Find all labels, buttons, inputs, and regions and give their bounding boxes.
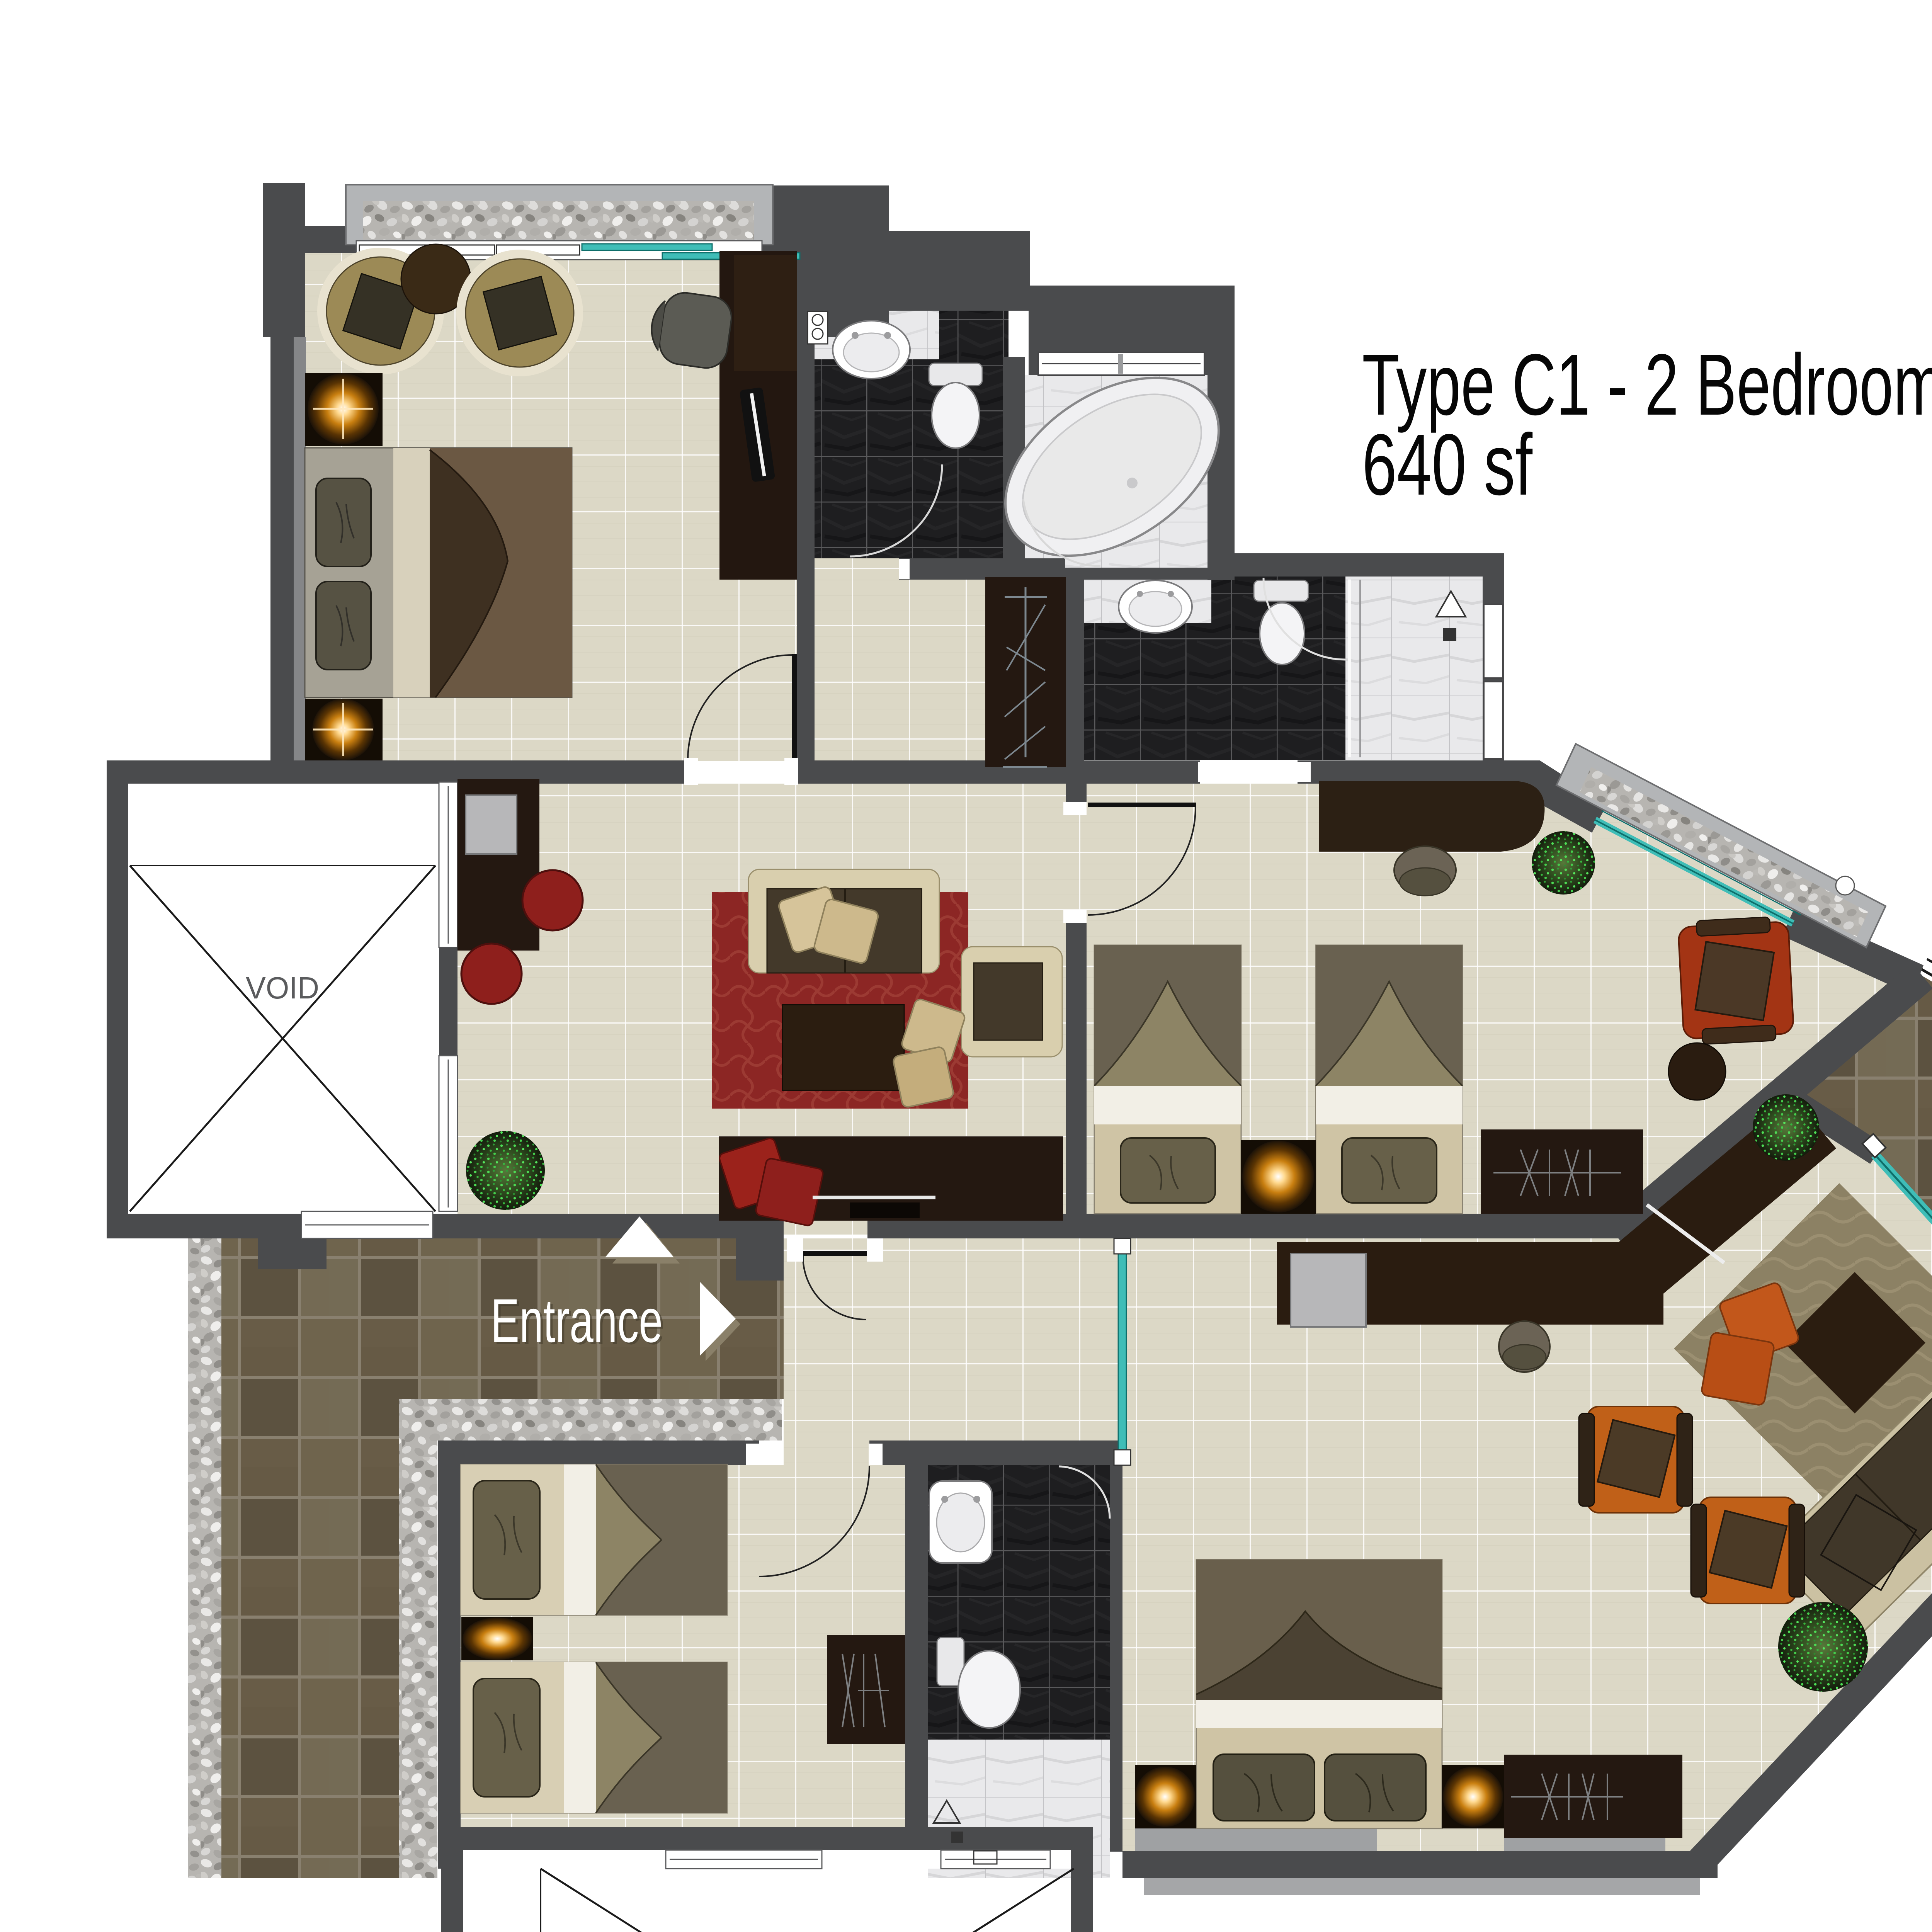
svg-text:VOID: VOID xyxy=(246,971,319,1005)
svg-text:Type C2 - 1 Bedroom: Type C2 - 1 Bedroom xyxy=(1327,1922,1906,1932)
svg-text:Entrance: Entrance xyxy=(491,1286,663,1355)
svg-text:640 sf: 640 sf xyxy=(1362,416,1532,513)
